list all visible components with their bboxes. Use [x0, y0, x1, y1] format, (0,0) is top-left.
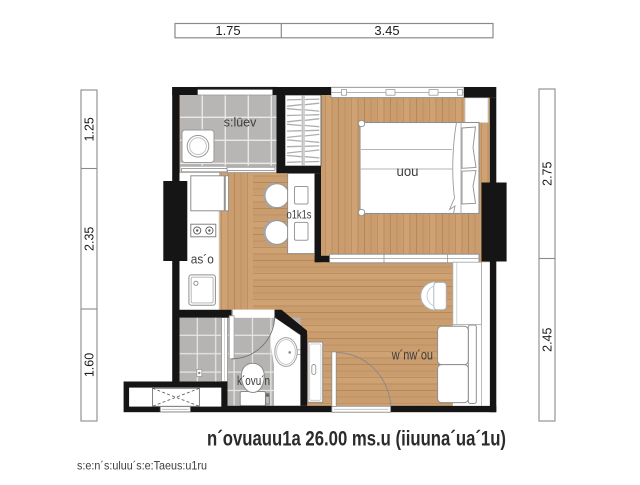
svg-text:2.75: 2.75 — [540, 161, 554, 185]
svg-text:2.45: 2.45 — [540, 327, 554, 351]
svg-text:3.45: 3.45 — [374, 23, 399, 38]
svg-text:w´nw´ou: w´nw´ou — [391, 346, 433, 362]
svg-text:n´ovuauu1a 26.00 ms.u (iiuuna: n´ovuauu1a 26.00 ms.u (iiuuna´ua´1u) — [207, 427, 506, 451]
svg-text:as´o: as´o — [191, 253, 214, 267]
svg-text:1.25: 1.25 — [82, 117, 96, 141]
svg-text:uou: uou — [397, 164, 419, 179]
svg-text:s:e:n´s:uluu´s:e:Taeus:u1ru: s:e:n´s:uluu´s:e:Taeus:u1ru — [77, 460, 207, 473]
svg-text:1.60: 1.60 — [82, 353, 96, 377]
svg-text:2.35: 2.35 — [82, 227, 96, 251]
svg-text:s:lūev: s:lūev — [224, 114, 257, 129]
svg-text:k´ovu´n: k´ovu´n — [237, 374, 270, 388]
svg-text:o1k1s: o1k1s — [287, 208, 312, 222]
svg-text:1.75: 1.75 — [215, 23, 240, 38]
